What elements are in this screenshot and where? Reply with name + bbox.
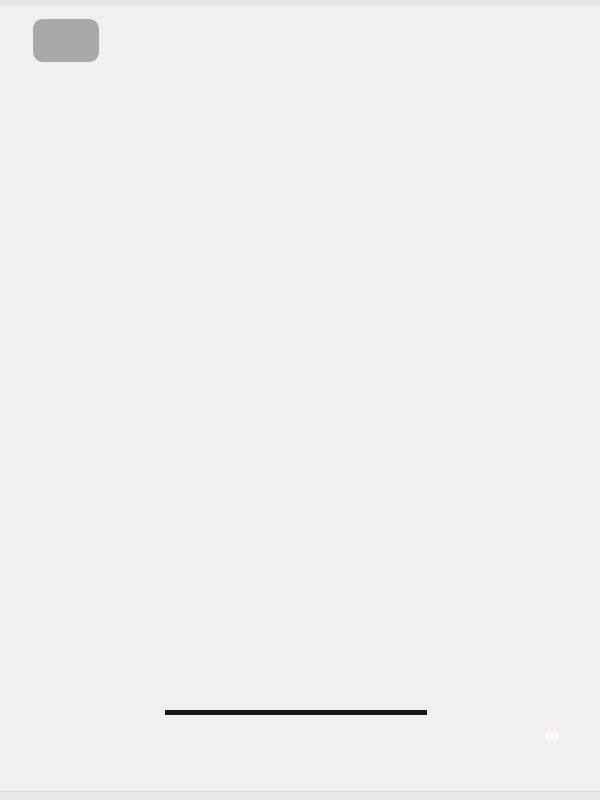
watermark-badge xyxy=(545,732,559,740)
title-underline xyxy=(165,710,427,715)
bottom-edge-band xyxy=(0,791,600,800)
floor-plan xyxy=(0,0,600,800)
floorplan-page xyxy=(0,0,600,800)
